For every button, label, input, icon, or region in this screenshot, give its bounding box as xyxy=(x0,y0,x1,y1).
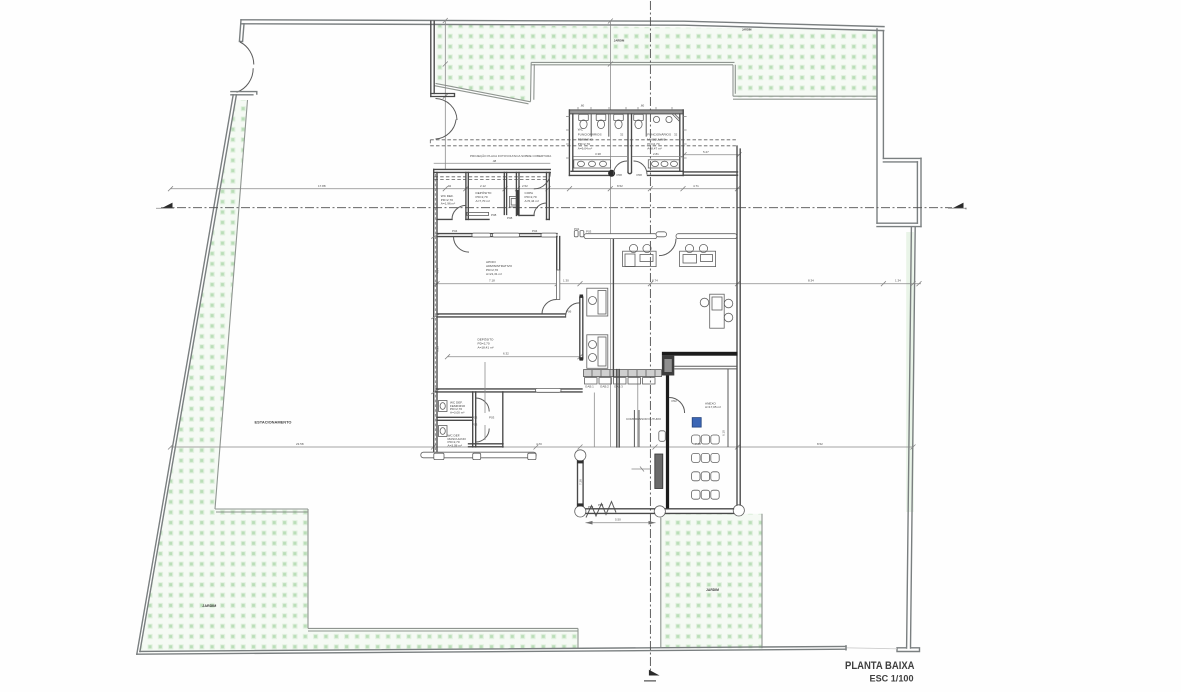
svg-text:A=17,05 m²: A=17,05 m² xyxy=(705,405,721,409)
svg-text:PLANTA BAIXA: PLANTA BAIXA xyxy=(845,660,915,672)
svg-text:JARDIM: JARDIM xyxy=(706,588,719,592)
svg-text:A=8,47 m²: A=8,47 m² xyxy=(647,146,661,150)
svg-text:A=18,41 m²: A=18,41 m² xyxy=(478,346,494,350)
svg-text:P03: P03 xyxy=(472,416,478,420)
svg-text:P03: P03 xyxy=(472,423,478,427)
svg-text:MASCULINO: MASCULINO xyxy=(647,138,666,142)
svg-text:32: 32 xyxy=(674,133,678,137)
svg-text:JARDIM: JARDIM xyxy=(742,28,752,32)
svg-text:P06: P06 xyxy=(566,310,572,314)
svg-text:GAB.1: GAB.1 xyxy=(585,385,594,389)
svg-text:ESTACIONAMENTO: ESTACIONAMENTO xyxy=(255,420,292,424)
svg-text:P02: P02 xyxy=(672,399,678,403)
svg-text:FEMININO: FEMININO xyxy=(578,138,594,142)
svg-text:7.28: 7.28 xyxy=(579,479,583,485)
svg-text:17.88: 17.88 xyxy=(318,184,326,188)
svg-text:JARDIM: JARDIM xyxy=(202,604,216,608)
svg-text:.60: .60 xyxy=(580,104,585,108)
svg-text:32: 32 xyxy=(620,133,624,137)
svg-text:7.18: 7.18 xyxy=(489,279,495,283)
svg-text:A=5,44 m²: A=5,44 m² xyxy=(525,199,539,203)
svg-text:6.10: 6.10 xyxy=(722,430,726,436)
svg-text:.60: .60 xyxy=(640,104,645,108)
svg-text:WC: WC xyxy=(578,128,584,132)
svg-text:A=1,96 m²: A=1,96 m² xyxy=(441,202,455,206)
svg-text:ESC 1/100: ESC 1/100 xyxy=(870,673,914,684)
svg-text:3.38: 3.38 xyxy=(595,152,601,156)
svg-text:P04: P04 xyxy=(532,229,538,233)
svg-text:P04: P04 xyxy=(452,229,458,233)
svg-text:2.81: 2.81 xyxy=(653,152,659,156)
svg-text:JARDIM: JARDIM xyxy=(614,39,625,43)
svg-text:P03: P03 xyxy=(586,229,592,233)
svg-text:COMPRESSOR FUTURO: COMPRESSOR FUTURO xyxy=(626,417,662,421)
svg-text:P03: P03 xyxy=(489,416,495,420)
svg-text:4.70: 4.70 xyxy=(536,442,542,446)
svg-text:A: A xyxy=(965,207,967,211)
svg-text:A=3,00 m²: A=3,00 m² xyxy=(450,410,464,414)
svg-text:8.52: 8.52 xyxy=(617,184,623,188)
svg-text:5.50: 5.50 xyxy=(615,518,621,522)
svg-text:.92: .92 xyxy=(447,184,452,188)
svg-text:1.34: 1.34 xyxy=(895,279,901,283)
svg-text:P01: P01 xyxy=(574,227,580,231)
svg-text:A=9,04 m²: A=9,04 m² xyxy=(578,146,592,150)
svg-text:GAB.2: GAB.2 xyxy=(600,385,609,389)
svg-text:6.32: 6.32 xyxy=(503,352,509,356)
svg-text:A=3,08 m²: A=3,08 m² xyxy=(448,443,462,447)
svg-text:P08: P08 xyxy=(617,173,623,177)
svg-text:5.27: 5.27 xyxy=(703,150,709,154)
svg-text:2.52: 2.52 xyxy=(522,184,528,188)
svg-text:.48: .48 xyxy=(492,159,497,163)
svg-text:8.74: 8.74 xyxy=(652,279,658,283)
svg-text:A=7,70 m²: A=7,70 m² xyxy=(476,199,490,203)
svg-text:P08: P08 xyxy=(491,213,497,217)
svg-text:P03: P03 xyxy=(598,503,604,507)
svg-text:PROJEÇÃO PLACA FOTOVOLTAICA SO: PROJEÇÃO PLACA FOTOVOLTAICA SOBRE COBERT… xyxy=(470,153,551,158)
svg-text:8.34: 8.34 xyxy=(808,279,814,283)
svg-text:2.12: 2.12 xyxy=(480,184,486,188)
svg-text:23.58: 23.58 xyxy=(296,442,304,446)
svg-text:FUNCIONÁRIOS: FUNCIONÁRIOS xyxy=(647,133,671,137)
svg-text:P08: P08 xyxy=(507,216,513,220)
svg-text:FUNCIONÁRIOS: FUNCIONÁRIOS xyxy=(578,133,602,137)
svg-text:P08: P08 xyxy=(637,173,643,177)
svg-text:4.71: 4.71 xyxy=(693,184,699,188)
svg-text:8.52: 8.52 xyxy=(817,442,823,446)
svg-text:A=21,31 m²: A=21,31 m² xyxy=(486,272,502,276)
svg-text:1.30: 1.30 xyxy=(563,279,569,283)
